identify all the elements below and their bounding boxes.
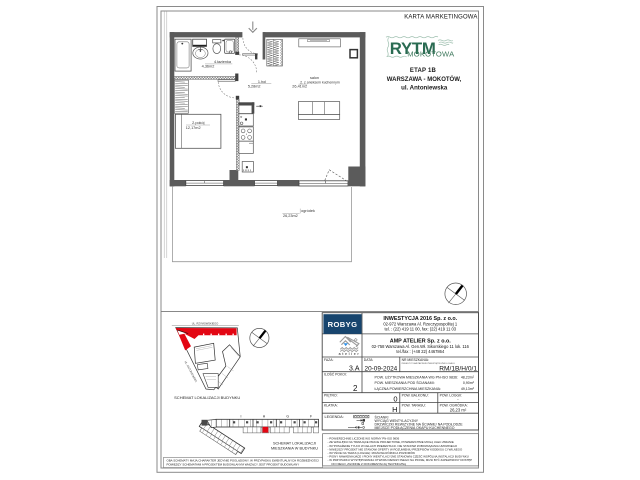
svg-text:4,36m2: 4,36m2 xyxy=(202,64,215,68)
svg-text:KLATKA:: KLATKA: xyxy=(324,403,338,407)
svg-text:ul. Antoniewska: ul. Antoniewska xyxy=(401,85,448,92)
svg-text:atelier: atelier xyxy=(339,352,361,356)
svg-text:ŁĄCZNA POWIERZCHNIA MIESZKANIA: ŁĄCZNA POWIERZCHNIA MIESZKANIA: xyxy=(375,387,442,391)
svg-text:H: H xyxy=(392,405,397,414)
svg-text:RM/1B/H/0/1: RM/1B/H/0/1 xyxy=(439,365,477,372)
svg-text:MIEJSCE PODŁĄCZENIA OKAPU KUCH: MIEJSCE PODŁĄCZENIA OKAPU KUCHENNEGO xyxy=(375,426,455,430)
svg-text:2.pokój: 2.pokój xyxy=(192,121,204,125)
svg-text:POW. BALKONU:: POW. BALKONU: xyxy=(402,394,429,398)
svg-text:POW. OGRÓDKA:: POW. OGRÓDKA: xyxy=(440,402,468,407)
svg-text:0: 0 xyxy=(393,394,397,403)
svg-text:5,28m2: 5,28m2 xyxy=(248,85,261,89)
svg-text:I: I xyxy=(241,415,242,419)
svg-text:DATA:: DATA: xyxy=(364,358,374,362)
svg-text:12,17m2: 12,17m2 xyxy=(186,126,201,130)
svg-text:DO NIEGO, ZGODNIE Z DOKUMENTAC: DO NIEGO, ZGODNIE Z DOKUMENTACJĄ TECHNIC… xyxy=(332,462,407,466)
svg-text:ROBYG: ROBYG xyxy=(328,320,358,329)
svg-text:salon: salon xyxy=(310,76,319,80)
svg-text:POW. MIESZKANIA POD ŚCIANAMI:: POW. MIESZKANIA POD ŚCIANAMI: xyxy=(375,380,435,385)
svg-text:UL. RZYMOWSKIEGO: UL. RZYMOWSKIEGO xyxy=(192,322,219,326)
svg-text:26,23m2: 26,23m2 xyxy=(283,214,298,218)
svg-text:KARTA MARKETINGOWA: KARTA MARKETINGOWA xyxy=(404,14,477,20)
svg-text:ETAP 1B: ETAP 1B xyxy=(410,68,437,74)
svg-text:1.hol: 1.hol xyxy=(258,80,266,84)
svg-text:FAZA:: FAZA: xyxy=(324,358,333,362)
svg-text:3.A: 3.A xyxy=(349,365,360,372)
svg-text:tel. : (22) 419 11 00, fax: (2: tel. : (22) 419 11 00, fax: (22) 419 11 … xyxy=(385,327,457,332)
svg-text:POMIĘDZY SCHEMATAMI A PROJEKTE: POMIĘDZY SCHEMATAMI A PROJEKTEM BUDOWLAN… xyxy=(167,461,300,466)
svg-text:POW. TARASU:: POW. TARASU: xyxy=(402,403,426,407)
svg-text:LEGENDA:: LEGENDA: xyxy=(325,415,344,419)
svg-text:4.łazienka: 4.łazienka xyxy=(214,60,232,64)
svg-text:WARSZAWA - MOKOTÓW,: WARSZAWA - MOKOTÓW, xyxy=(387,75,462,83)
svg-text:ogródek: ogródek xyxy=(301,209,315,213)
svg-text:MIESZKANIA W BUDYNKU: MIESZKANIA W BUDYNKU xyxy=(271,446,318,450)
svg-text:tel./fax : (+48 22) 4467864: tel./fax : (+48 22) 4467864 xyxy=(396,349,445,354)
svg-text:MOKOTOWA: MOKOTOWA xyxy=(407,49,455,58)
svg-text:49,13m²: 49,13m² xyxy=(461,387,475,391)
svg-text:POW. UŻYTKOWA MIESZKANIA WG PN: POW. UŻYTKOWA MIESZKANIA WG PN-ISO 9836: xyxy=(375,374,459,379)
svg-text:2: 2 xyxy=(353,384,358,393)
svg-text:20-09-2024: 20-09-2024 xyxy=(365,365,398,372)
svg-text:26,41m2: 26,41m2 xyxy=(292,85,307,89)
svg-text:SCHEMAT LOKALIZACJI BUDYNKU: SCHEMAT LOKALIZACJI BUDYNKU xyxy=(174,395,240,400)
svg-text:G: G xyxy=(286,415,289,419)
svg-text:SCHEMAT LOKALIZACJI: SCHEMAT LOKALIZACJI xyxy=(273,441,316,445)
svg-text:26,23 m²: 26,23 m² xyxy=(450,408,467,413)
svg-text:ILOŚĆ POKOI:: ILOŚĆ POKOI: xyxy=(324,372,347,377)
svg-text:POW. LOGGII:: POW. LOGGII: xyxy=(440,394,462,398)
svg-text:F: F xyxy=(310,415,312,419)
svg-text:PIĘTRO:: PIĘTRO: xyxy=(324,394,338,398)
svg-text:NR MIESZKANIA:: NR MIESZKANIA: xyxy=(402,358,429,362)
svg-text:48,23m²: 48,23m² xyxy=(461,375,475,379)
svg-text:0,90m²: 0,90m² xyxy=(463,381,475,385)
